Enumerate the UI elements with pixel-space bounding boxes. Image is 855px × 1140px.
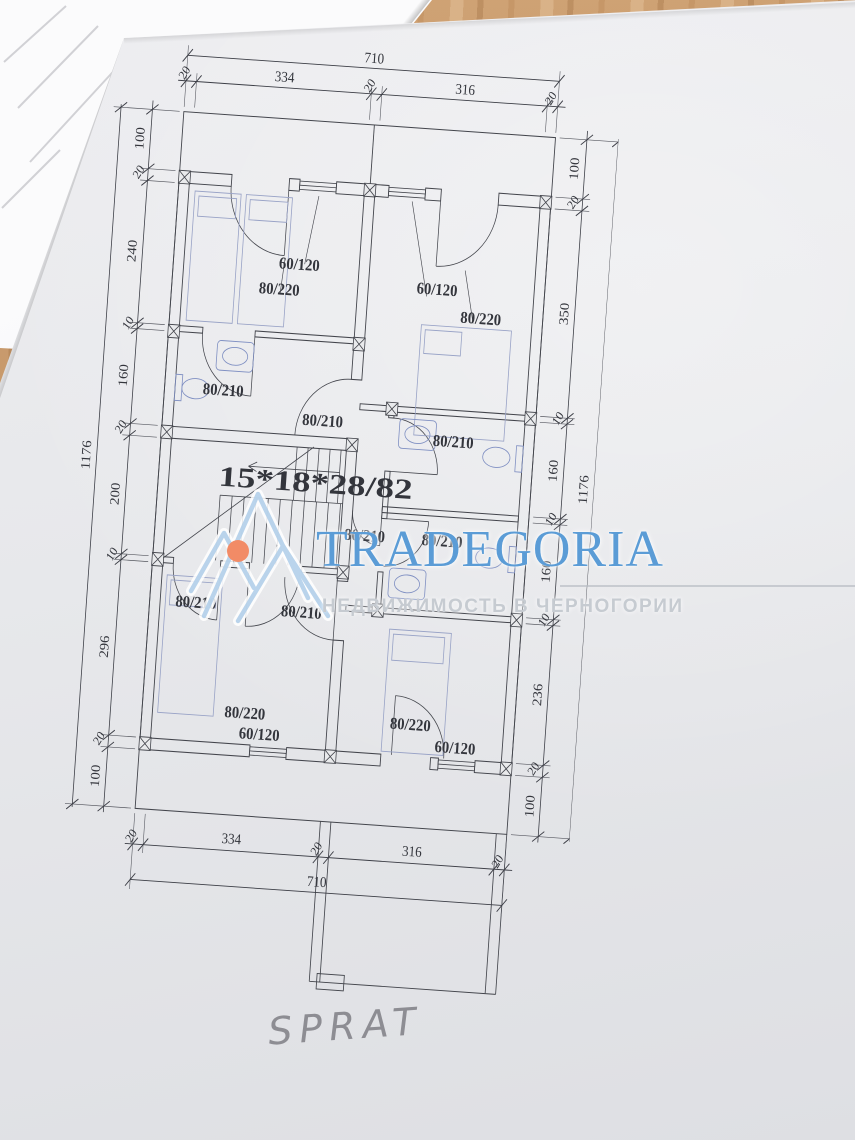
dim-left-160: 160 <box>116 364 132 387</box>
door-size-label: 80/210 <box>202 380 244 401</box>
dim-right-10b: 10 <box>542 510 559 529</box>
dim-left-total: 1176 <box>79 440 95 470</box>
dim-top-316: 316 <box>455 82 476 99</box>
dim-right-160a: 160 <box>546 459 562 482</box>
door-size-label: 80/220 <box>389 715 431 736</box>
stair-break-line <box>163 437 314 568</box>
window-size-label: 60/120 <box>278 255 320 276</box>
dim-right-total: 1176 <box>576 475 592 505</box>
dim-left-240: 240 <box>125 239 141 262</box>
dim-right-100b: 100 <box>523 795 539 818</box>
dim-right-236: 236 <box>531 683 547 706</box>
dim-left-20b: 20 <box>112 417 129 436</box>
door-size-label: 80/210 <box>421 531 463 552</box>
dim-left-296: 296 <box>97 635 113 658</box>
door-size-label: 80/220 <box>460 309 502 330</box>
stair-formula-label: 15*18*28/82 <box>218 460 414 505</box>
window-size-label: 60/120 <box>434 738 476 759</box>
dim-bottom-316: 316 <box>402 844 423 861</box>
dim-bottom-20b: 20 <box>308 839 325 858</box>
dim-bottom-20c: 20 <box>489 852 506 871</box>
dim-right-20a: 20 <box>564 193 581 212</box>
door-size-label: 80/220 <box>224 703 266 724</box>
door-size-label: 80/210 <box>432 432 474 453</box>
dim-left-10b: 10 <box>103 544 120 563</box>
floor-plan-drawing: 710 20 334 20 316 20 20 334 20 316 20 71… <box>27 28 624 1043</box>
dim-top-334: 334 <box>274 69 295 86</box>
door-size-label: 80/210 <box>280 602 322 623</box>
dim-left-20c: 20 <box>90 729 107 748</box>
dim-right-10a: 10 <box>549 409 566 428</box>
door-size-label: 80/220 <box>258 279 300 300</box>
room-size-labels: 60/120 80/220 60/120 80/220 80/210 80/21… <box>166 249 509 759</box>
dim-bottom-334: 334 <box>221 831 242 848</box>
floorplan-paper: 710 20 334 20 316 20 20 334 20 316 20 71… <box>0 0 855 1140</box>
dim-top-total: 710 <box>364 51 385 68</box>
dim-right-100a: 100 <box>568 157 584 180</box>
staircase <box>163 437 346 570</box>
dim-left-20a: 20 <box>130 162 147 181</box>
dim-top-20c: 20 <box>542 89 559 108</box>
dim-right-350: 350 <box>557 302 573 325</box>
floor-plan-svg: 710 20 334 20 316 20 20 334 20 316 20 71… <box>27 28 624 1043</box>
dim-left-200: 200 <box>108 482 124 505</box>
dim-top-20b: 20 <box>361 76 378 95</box>
door-size-label: 80/210 <box>302 411 344 432</box>
dim-left-100a: 100 <box>133 127 149 150</box>
dim-right-10c: 10 <box>535 610 552 629</box>
dim-top-20a: 20 <box>176 63 193 82</box>
dim-left-100b: 100 <box>88 764 104 787</box>
dim-right-160b: 160 <box>539 560 555 583</box>
window-size-label: 60/120 <box>238 724 280 745</box>
dim-bottom-20a: 20 <box>122 826 139 845</box>
door-size-label: 80/210 <box>344 526 386 547</box>
dim-left-10a: 10 <box>119 313 136 332</box>
dim-right-20b: 20 <box>525 759 542 778</box>
photo-of-floorplan: 710 20 334 20 316 20 20 334 20 316 20 71… <box>0 0 855 1140</box>
door-size-label: 80/210 <box>175 593 217 614</box>
dim-bottom-total: 710 <box>306 874 327 891</box>
window-size-label: 60/120 <box>416 280 458 301</box>
